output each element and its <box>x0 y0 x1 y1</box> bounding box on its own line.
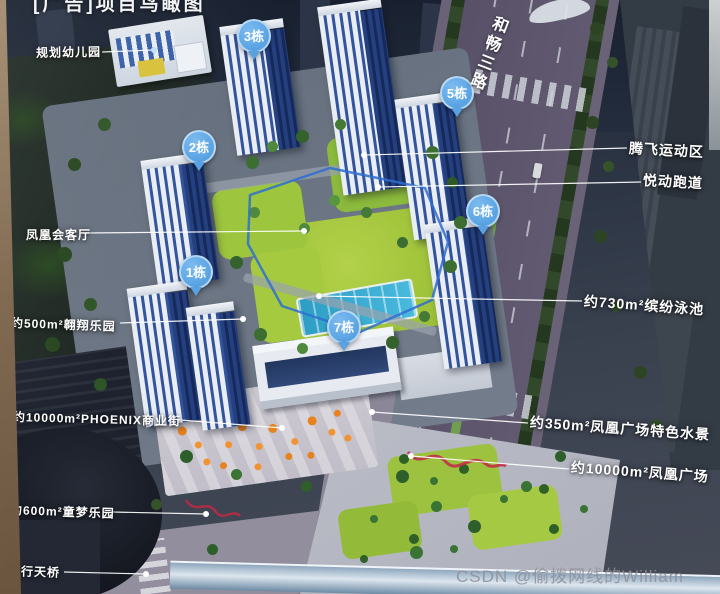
label-soaring-park: 约500m²翱翔乐园 <box>11 314 116 335</box>
site-plan-board-photo: [广告]项目鸟瞰图 和畅三路 CSDN @偷拨网线的William 规划幼儿园凤… <box>0 0 720 594</box>
badge-building-2: 2栋 <box>182 130 216 164</box>
badge-building-1: 1栋 <box>179 255 213 289</box>
badge-pin-tail <box>248 51 260 60</box>
label-yuedong-track: 悦动跑道 <box>642 170 703 193</box>
render-kindergarten-annex <box>173 41 207 73</box>
label-tengfei-sports-zone: 腾飞运动区 <box>628 138 704 162</box>
badge-pin-tail <box>338 342 350 351</box>
badge-pin-tail <box>451 108 463 117</box>
badge-pin-tail <box>477 226 489 235</box>
label-planned-kindergarten: 规划幼儿园 <box>36 43 101 61</box>
render-plaza-lawn <box>467 484 564 551</box>
render-podium-glass <box>265 346 389 389</box>
badge-label: 7栋 <box>327 310 361 344</box>
render-kindergarten-court <box>137 58 165 78</box>
csdn-watermark: CSDN @偷拨网线的William <box>456 562 684 587</box>
badge-label: 6栋 <box>466 194 500 228</box>
render-car <box>532 163 542 179</box>
render-plaza-lawn <box>337 500 423 561</box>
badge-label: 3栋 <box>237 19 271 53</box>
label-phoenix-lounge: 凤凰会客厅 <box>26 226 91 243</box>
badge-label: 1栋 <box>179 255 213 289</box>
badge-building-3: 3栋 <box>237 19 271 53</box>
badge-building-7: 7栋 <box>327 310 361 344</box>
badge-pin-tail <box>190 287 202 296</box>
badge-building-6: 6栋 <box>466 194 500 228</box>
label-dream-kids-park: 约600m²童梦乐园 <box>10 501 115 522</box>
board-title-clipped: [广告]项目鸟瞰图 <box>33 0 206 16</box>
photo-glare-edge <box>709 0 720 150</box>
badge-label: 2栋 <box>182 130 216 164</box>
badge-pin-tail <box>193 162 205 171</box>
